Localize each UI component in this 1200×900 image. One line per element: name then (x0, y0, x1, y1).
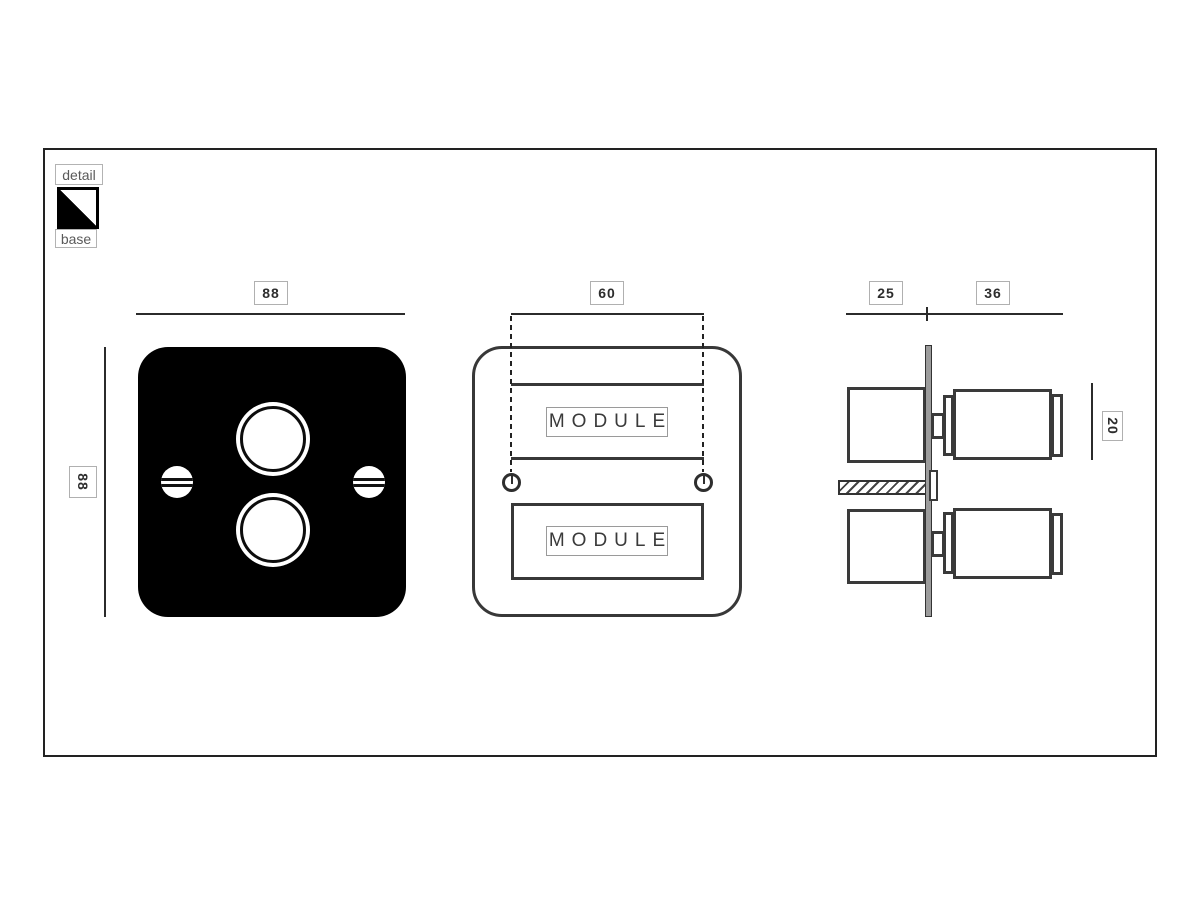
module-label-bottom-text: MODULE (542, 530, 672, 552)
screw-left-slot (161, 478, 193, 481)
knob-top (236, 402, 310, 476)
knob-bottom-cap-side (1051, 513, 1063, 575)
front-plate (138, 347, 406, 617)
front-height-dim-line (104, 347, 106, 617)
dim-extension-dashed-right (702, 316, 704, 472)
dim-extension-dashed-left (510, 316, 512, 472)
legend-base-label: base (55, 229, 97, 248)
middle-screw-right (694, 473, 713, 492)
screw-head-side (929, 470, 938, 501)
module-width-dim-line (511, 313, 704, 315)
knob-height-value: 20 (1104, 417, 1120, 435)
module-label-top: MODULE (546, 407, 668, 437)
front-height-dim-label: 88 (69, 466, 97, 498)
screw-left-slot2 (161, 484, 193, 487)
middle-screw-left (502, 473, 521, 492)
middle-screw-left-slot (511, 476, 513, 484)
front-width-value: 88 (262, 285, 280, 301)
knob-height-dim-label: 20 (1102, 411, 1123, 441)
front-width-dim-label: 88 (254, 281, 288, 305)
side-module-box-top (847, 387, 926, 463)
knob-top-cap-side (1051, 394, 1063, 457)
screw-right-slot (353, 478, 385, 481)
screw-right-slot2 (353, 484, 385, 487)
side-box-depth-value: 25 (877, 285, 895, 301)
legend-detail-text: detail (62, 167, 95, 183)
middle-screw-right-slot (703, 476, 705, 484)
finish-swatch-icon (57, 187, 99, 229)
module-label-bottom: MODULE (546, 526, 668, 556)
fixing-screw-thread (838, 480, 927, 495)
knob-bottom-ring (240, 497, 306, 563)
screw-left (161, 466, 193, 498)
front-width-dim-line (136, 313, 405, 315)
screw-right (353, 466, 385, 498)
side-knob-depth-value: 36 (984, 285, 1002, 301)
knob-top-body-side (953, 389, 1052, 460)
side-knob-depth-label: 36 (976, 281, 1010, 305)
side-box-depth-label: 25 (869, 281, 903, 305)
module-width-dim-label: 60 (590, 281, 624, 305)
knob-bottom (236, 493, 310, 567)
knob-top-ring (240, 406, 306, 472)
module-label-top-text: MODULE (542, 411, 672, 433)
module-width-value: 60 (598, 285, 616, 301)
knob-bottom-body-side (953, 508, 1052, 579)
front-height-value: 88 (75, 473, 91, 491)
knob-height-dim-line (1091, 383, 1093, 460)
side-module-box-bottom (847, 509, 926, 584)
legend-base-text: base (61, 231, 91, 247)
legend-detail-label: detail (55, 164, 103, 185)
side-depth-dim-line (846, 313, 1063, 315)
side-dim-tick (926, 307, 928, 321)
technical-drawing-canvas: detail base 88 88 60 M (0, 0, 1200, 900)
